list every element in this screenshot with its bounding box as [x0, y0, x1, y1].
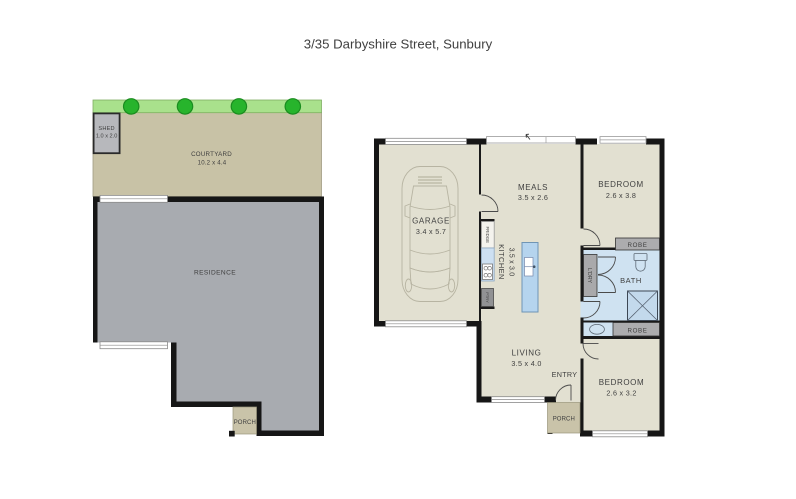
- svg-text:2.6 x 3.2: 2.6 x 3.2: [606, 389, 636, 398]
- svg-text:GARAGE: GARAGE: [412, 217, 450, 226]
- svg-text:L'DRY: L'DRY: [586, 268, 592, 284]
- svg-text:COURTYARD: COURTYARD: [191, 151, 232, 158]
- svg-text:3.5 x 2.6: 3.5 x 2.6: [518, 193, 548, 202]
- svg-text:PORCH: PORCH: [553, 416, 575, 422]
- svg-text:ROBE: ROBE: [628, 328, 648, 335]
- svg-text:3.4 x 5.7: 3.4 x 5.7: [416, 227, 446, 236]
- svg-text:FRIDGE: FRIDGE: [485, 227, 490, 244]
- svg-text:2.6 x 3.8: 2.6 x 3.8: [606, 191, 636, 200]
- svg-text:10.2 x 4.4: 10.2 x 4.4: [198, 160, 227, 167]
- svg-text:RESIDENCE: RESIDENCE: [194, 270, 236, 277]
- svg-text:MEALS: MEALS: [518, 183, 548, 192]
- svg-text:BATH: BATH: [620, 276, 642, 285]
- svg-text:3.5 x 3.0: 3.5 x 3.0: [508, 248, 515, 277]
- svg-text:3.5 x 4.0: 3.5 x 4.0: [511, 359, 541, 368]
- svg-text:SHED: SHED: [98, 126, 114, 132]
- svg-text:PORCH: PORCH: [234, 420, 256, 426]
- svg-text:BEDROOM: BEDROOM: [599, 378, 645, 387]
- svg-text:3/35 Darbyshire Street, Sunbur: 3/35 Darbyshire Street, Sunbury: [304, 37, 493, 52]
- svg-text:KITCHEN: KITCHEN: [497, 244, 506, 280]
- svg-text:PTRY: PTRY: [485, 292, 490, 303]
- svg-text:1.0 x 2.0: 1.0 x 2.0: [96, 134, 117, 140]
- svg-text:ROBE: ROBE: [628, 242, 648, 249]
- svg-text:ENTRY: ENTRY: [552, 370, 578, 379]
- svg-text:LIVING: LIVING: [512, 349, 542, 358]
- svg-text:BEDROOM: BEDROOM: [598, 180, 644, 189]
